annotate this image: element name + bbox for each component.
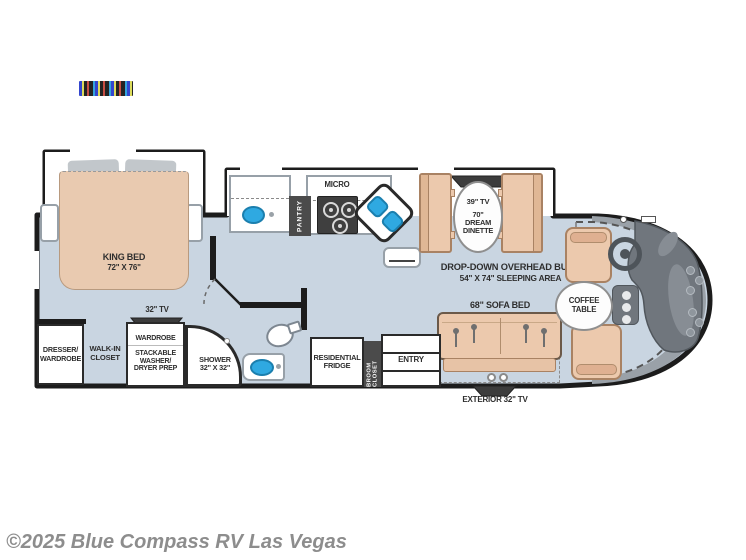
dinette-table: 39" TV 70" DREAM DINETTE [453,181,503,253]
coffee-table: COFFEE TABLE [555,281,613,331]
dash-detail-circle-1 [686,266,695,275]
walkin-label-line2: CLOSET [82,354,128,363]
seatbelt-icon-2 [473,328,475,343]
washer-prep-label: STACKABLE WASHER/ DRYER PREP [128,350,183,373]
dealer-watermark: ©2025 Blue Compass RV Las Vegas [6,531,347,554]
dash-detail-circle-3 [686,286,695,295]
dishwasher-handle [389,260,415,262]
broom-closet-label: BROOM CLOSET [364,341,381,387]
overhead-cabinet-dash-left [231,198,289,199]
prep-faucet-icon [269,212,274,217]
wall-bath-vertical [301,288,307,330]
wardrobe-washer-cabinet: WARDROBE STACKABLE WASHER/ DRYER PREP [126,322,185,387]
dash-detail-circle-6 [686,328,695,337]
sofa-center-divider [500,318,502,354]
walkin-closet-label: WALK-IN CLOSET [82,345,128,362]
cooktop [317,196,358,234]
king-bed-size-label: 72" X 76" [59,264,189,273]
pantry-cabinet: PANTRY [289,196,311,236]
shower-label: SHOWER 32" X 32" [190,356,240,372]
microwave-label: MICRO [317,181,357,190]
bench-left-backrest [421,175,429,251]
kitchen-counter-left [229,175,291,233]
bench-right-backrest [533,175,541,251]
seatbelt-icon-4 [543,332,545,347]
dishwasher-cabinet [383,247,421,268]
sofa-leg-icon-1 [487,373,496,382]
steering-hub [620,249,630,259]
model-code-artifact [79,81,133,96]
window-kitchen-slide-1 [240,167,282,171]
roof-vent-rect [641,216,656,223]
bench-left-tab-1 [450,189,455,197]
washer-label-line1: STACKABLE [128,350,183,358]
dresser-label-line2: WARDROBE [40,355,81,363]
residential-fridge: RESIDENTIAL FRIDGE [310,337,364,387]
exterior-tv-label: EXTERIOR 32" TV [450,396,540,405]
dinette-tv-label: 39" TV [467,198,490,207]
chair-front-backrest [570,232,607,243]
window-rear [34,251,39,289]
bench-left-tab-2 [450,231,455,239]
seatbelt-icon-3 [525,328,527,343]
kitchen-prep-sink [242,206,265,224]
dresser-wardrobe: DRESSER/ WARDROBE [37,324,84,385]
shower-head-icon [224,338,230,344]
bedroom-tv-label: 32" TV [138,306,176,315]
dinette-bench-right [501,173,543,253]
dash-detail-circle-2 [695,276,704,285]
washer-label-line3: DRYER PREP [128,365,183,373]
roof-vent-circle [620,216,627,223]
cupholder-icon-1 [622,291,631,300]
chair-rear-backrest [576,364,617,375]
fridge-label-line2: FRIDGE [313,362,360,370]
sofa-leg-icon-2 [499,373,508,382]
coffee-label-line2: TABLE [569,306,599,315]
seatbelt-icon-1 [455,332,457,347]
sofa-front-band [443,358,556,372]
burner-icon-1 [323,202,339,218]
dinette-label: 70" DREAM DINETTE [463,211,493,236]
floorplan-page: { "watermark": "©2025 Blue Compass RV La… [0,0,746,560]
wall-bath-horizontal [240,302,306,308]
shower-label-line2: 32" X 32" [190,364,240,372]
pantry-label: PANTRY [289,196,311,236]
king-bed-label: KING BED 72" X 76" [59,252,189,273]
dash-detail-circle-5 [695,318,704,327]
entry-label: ENTRY [383,356,439,365]
dash-detail-circle-4 [688,308,697,317]
steering-wheel-icon [608,237,642,271]
dinette-bench-left [419,173,452,253]
bath-sink [250,359,274,376]
bath-vanity [242,353,285,381]
washer-label-line2: WASHER/ [128,358,183,366]
center-console [612,285,639,325]
dresser-wardrobe-label: DRESSER/ WARDROBE [40,346,81,362]
wall-bedroom [210,236,216,280]
cupholder-icon-3 [622,315,631,324]
entry-steps: ENTRY [381,334,441,387]
entry-step-line-1 [383,352,439,354]
captain-chair-front [565,227,612,283]
window-bed-slide [70,149,136,153]
fridge-label: RESIDENTIAL FRIDGE [313,354,360,371]
wardrobe-label: WARDROBE [128,335,183,346]
dinette-label-line3: DINETTE [463,227,493,235]
bench-right-tab-1 [498,189,503,197]
window-kitchen-slide-2 [418,167,454,171]
king-bed-label-line1: KING BED [59,252,189,262]
broom-closet: BROOM CLOSET [364,341,381,387]
coffee-table-label: COFFEE TABLE [569,297,599,314]
burner-icon-3 [332,218,348,234]
sofa-bed [437,312,562,360]
cupholder-icon-2 [622,303,631,312]
captain-chair-rear [571,324,622,380]
nightstand-left [40,204,59,242]
bath-faucet-icon [276,364,281,369]
sofa-label: 68" SOFA BED [455,300,545,310]
entry-step-line-2 [383,370,439,372]
